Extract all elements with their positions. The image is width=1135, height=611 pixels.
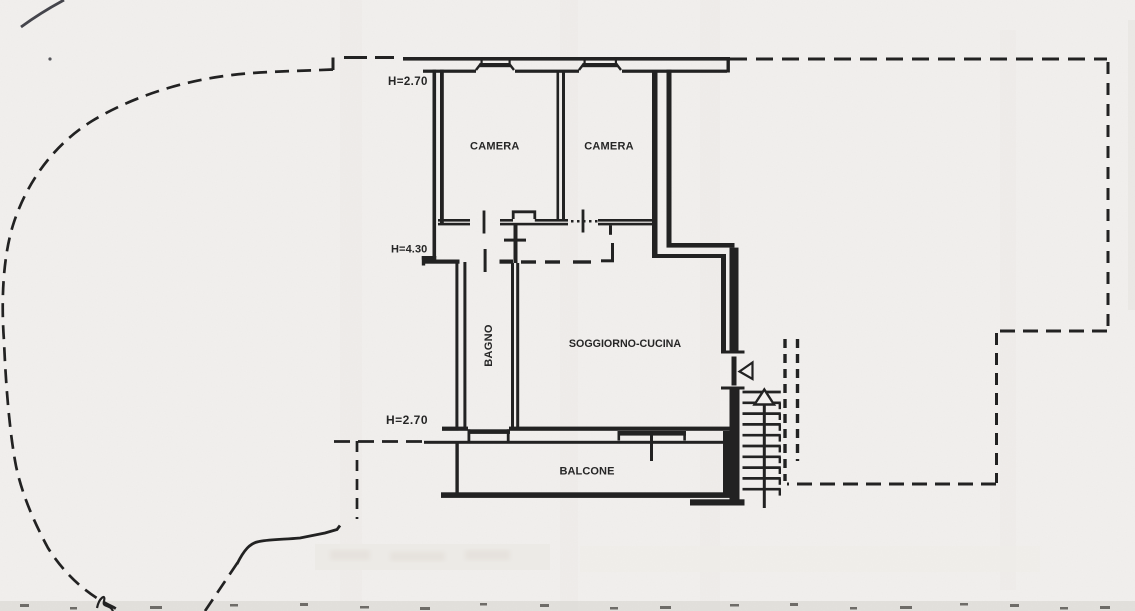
svg-text:BALCONE: BALCONE	[559, 466, 614, 478]
svg-text:H=4.30: H=4.30	[391, 244, 427, 256]
svg-text:H=2.70: H=2.70	[388, 76, 428, 88]
svg-text:H=2.70: H=2.70	[386, 413, 428, 427]
svg-text:BAGNO: BAGNO	[483, 324, 495, 367]
svg-text:CAMERA: CAMERA	[470, 141, 519, 153]
svg-text:SOGGIORNO-CUCINA: SOGGIORNO-CUCINA	[569, 338, 682, 350]
svg-text:CAMERA: CAMERA	[584, 141, 633, 153]
